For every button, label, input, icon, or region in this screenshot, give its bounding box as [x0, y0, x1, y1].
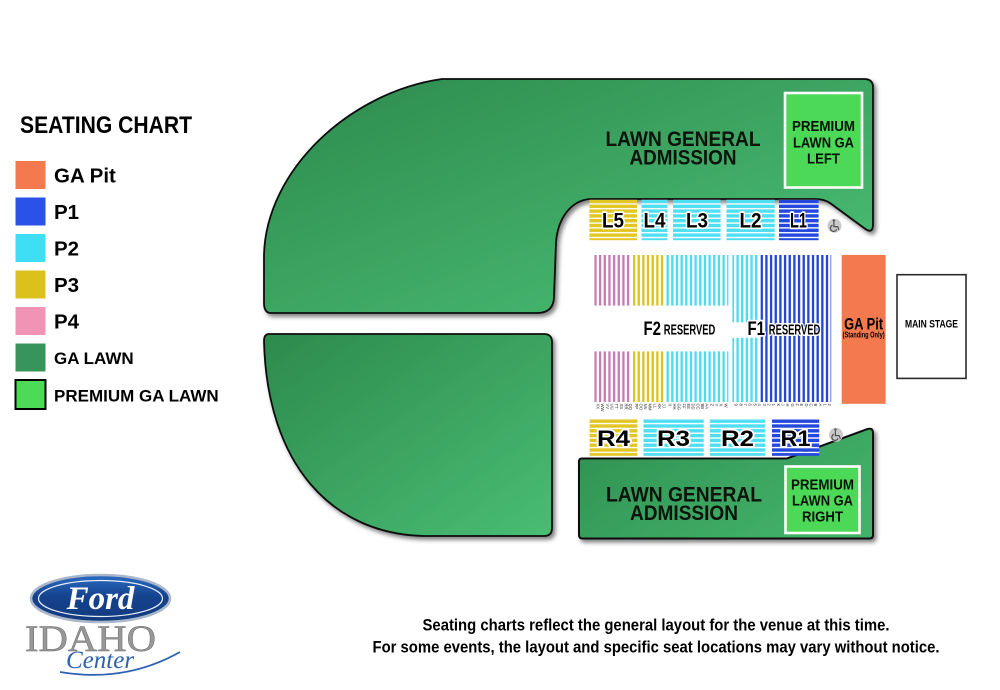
svg-text:W: W: [723, 404, 728, 408]
svg-text:VV: VV: [605, 404, 610, 410]
svg-text:EE: EE: [686, 404, 691, 410]
svg-text:D: D: [804, 404, 809, 407]
svg-text:SEATING CHART: SEATING CHART: [20, 112, 192, 139]
svg-text:G: G: [790, 404, 795, 407]
svg-text:WW: WW: [600, 404, 605, 412]
svg-text:CC: CC: [695, 404, 700, 410]
svg-text:K: K: [776, 404, 781, 407]
svg-text:RIGHT: RIGHT: [802, 510, 843, 526]
svg-text:Y: Y: [714, 404, 719, 407]
svg-text:(Standing Only): (Standing Only): [843, 331, 885, 340]
svg-text:MM: MM: [648, 404, 653, 411]
svg-text:PP: PP: [634, 404, 639, 410]
svg-text:E: E: [799, 404, 804, 407]
svg-text:J: J: [781, 404, 786, 406]
svg-text:ADMISSION: ADMISSION: [630, 146, 737, 170]
svg-text:P3: P3: [54, 274, 79, 297]
svg-text:OO: OO: [638, 404, 643, 411]
svg-text:R1: R1: [781, 426, 811, 451]
svg-text:PREMIUM: PREMIUM: [792, 119, 855, 135]
svg-text:X: X: [719, 404, 724, 407]
svg-text:UU: UU: [610, 404, 615, 410]
svg-text:Z: Z: [709, 404, 714, 407]
svg-text:ADMISSION: ADMISSION: [630, 501, 738, 525]
svg-text:FF: FF: [681, 404, 686, 410]
svg-text:C: C: [809, 404, 814, 407]
svg-text:PREMIUM GA LAWN: PREMIUM GA LAWN: [54, 387, 219, 406]
svg-text:L1: L1: [790, 209, 807, 233]
svg-text:PREMIUM: PREMIUM: [791, 478, 854, 494]
svg-text:H: H: [785, 404, 790, 407]
svg-text:LAWN GA: LAWN GA: [792, 494, 853, 510]
svg-text:JJ: JJ: [662, 404, 667, 408]
svg-text:For some events, the layout an: For some events, the layout and specific…: [373, 638, 940, 657]
svg-text:L5: L5: [602, 209, 624, 233]
svg-text:LL: LL: [652, 404, 657, 409]
svg-text:MAIN STAGE: MAIN STAGE: [905, 319, 958, 331]
svg-text:B: B: [813, 404, 818, 407]
svg-text:F: F: [795, 404, 800, 407]
svg-text:AA: AA: [705, 404, 710, 410]
svg-text:RESERVED: RESERVED: [664, 323, 716, 339]
svg-text:QQ: QQ: [628, 404, 633, 411]
svg-text:GG: GG: [677, 404, 682, 411]
svg-text:DD: DD: [691, 404, 696, 410]
svg-text:BB: BB: [700, 404, 705, 410]
svg-text:F2: F2: [644, 319, 662, 340]
svg-text:R4: R4: [597, 426, 631, 451]
svg-text:RESERVED: RESERVED: [769, 323, 821, 339]
svg-text:GA LAWN: GA LAWN: [54, 349, 134, 368]
svg-text:Ford: Ford: [66, 581, 135, 617]
svg-text:GA Pit: GA Pit: [54, 165, 116, 188]
svg-text:RR: RR: [624, 404, 629, 410]
svg-text:HH: HH: [672, 404, 677, 410]
svg-text:P4: P4: [54, 311, 80, 334]
svg-text:P1: P1: [54, 201, 79, 224]
svg-text:A: A: [818, 404, 823, 407]
svg-text:F1: F1: [748, 319, 766, 340]
svg-text:L2: L2: [740, 209, 762, 233]
svg-text:KK: KK: [657, 404, 662, 410]
svg-text:II: II: [667, 404, 672, 406]
svg-text:Seating charts reflect the gen: Seating charts reflect the general layou…: [423, 616, 890, 635]
svg-text:SS: SS: [619, 404, 624, 410]
svg-text:R3: R3: [657, 426, 690, 451]
svg-text:L4: L4: [644, 209, 666, 233]
svg-text:LAWN GA: LAWN GA: [793, 136, 854, 152]
svg-text:L3: L3: [686, 209, 708, 233]
svg-text:TT: TT: [614, 404, 619, 410]
svg-text:P2: P2: [54, 238, 79, 261]
svg-text:XX: XX: [596, 404, 601, 410]
svg-text:R2: R2: [721, 426, 754, 451]
svg-text:Center: Center: [66, 647, 134, 674]
svg-text:LEFT: LEFT: [807, 152, 840, 168]
svg-text:NN: NN: [643, 404, 648, 410]
